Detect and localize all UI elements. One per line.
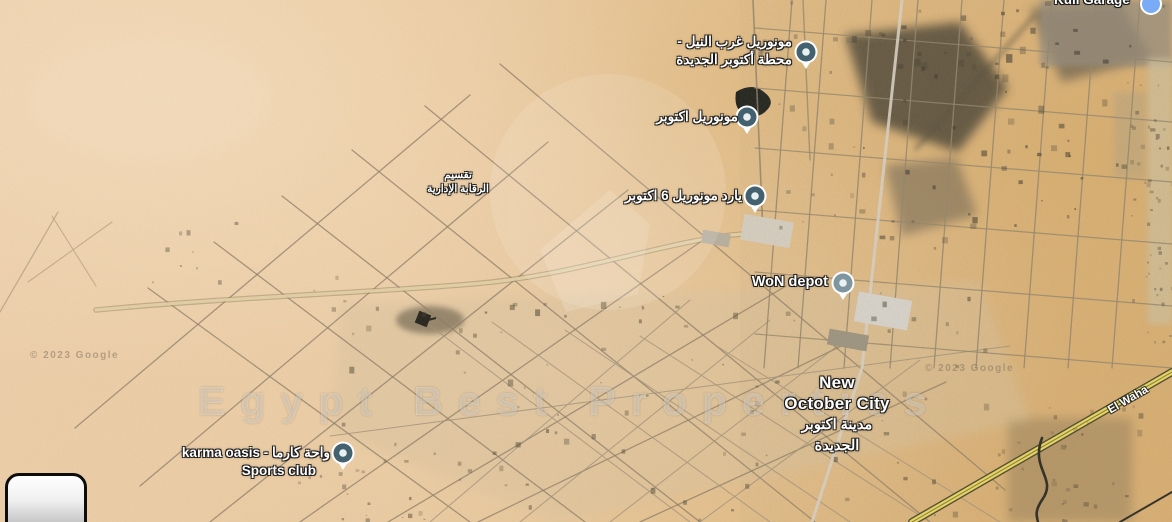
google-credit-left: © 2023 Google [30,350,119,361]
label-line: مدينة اكتوبر [762,415,912,436]
label-line: تقسيم [408,169,508,183]
label-line: الرقابة الإدارية [408,183,508,197]
label-line: الجديدة [762,436,912,457]
google-credit-right: © 2023 Google [925,363,1014,374]
label-line: October City [762,393,912,414]
label-line: محطة أكتوبر الجديدة [676,51,792,69]
label-line: Sports club [182,462,316,480]
label-line: karma oasis - واحة كارما [182,444,330,462]
satellite-map[interactable]: Egypt Best Properties © 2023 Google © 20… [0,0,1172,522]
label-line: مونوريل غرب النيل - [676,33,792,51]
label-monorail-october[interactable]: مونوريل اكتوبر [656,108,738,126]
label-monorail-yard[interactable]: يارد مونوريل 6 اكتوبر [625,187,742,205]
label-karma-oasis[interactable]: karma oasis - واحة كارما Sports club [182,444,330,480]
label-monorail-west-nile[interactable]: مونوريل غرب النيل - محطة أكتوبر الجديدة [676,33,792,69]
map-canvas [0,0,1172,522]
label-kull-garage[interactable]: Kull Garage [1054,0,1130,9]
label-won-depot[interactable]: WoN depot [752,273,828,293]
map-overlay-panel[interactable] [5,473,87,522]
label-new-october-city: New October City مدينة اكتوبر الجديدة [762,372,912,457]
label-line: New [762,372,912,393]
label-taqsim-district: تقسيم الرقابة الإدارية [408,169,508,196]
